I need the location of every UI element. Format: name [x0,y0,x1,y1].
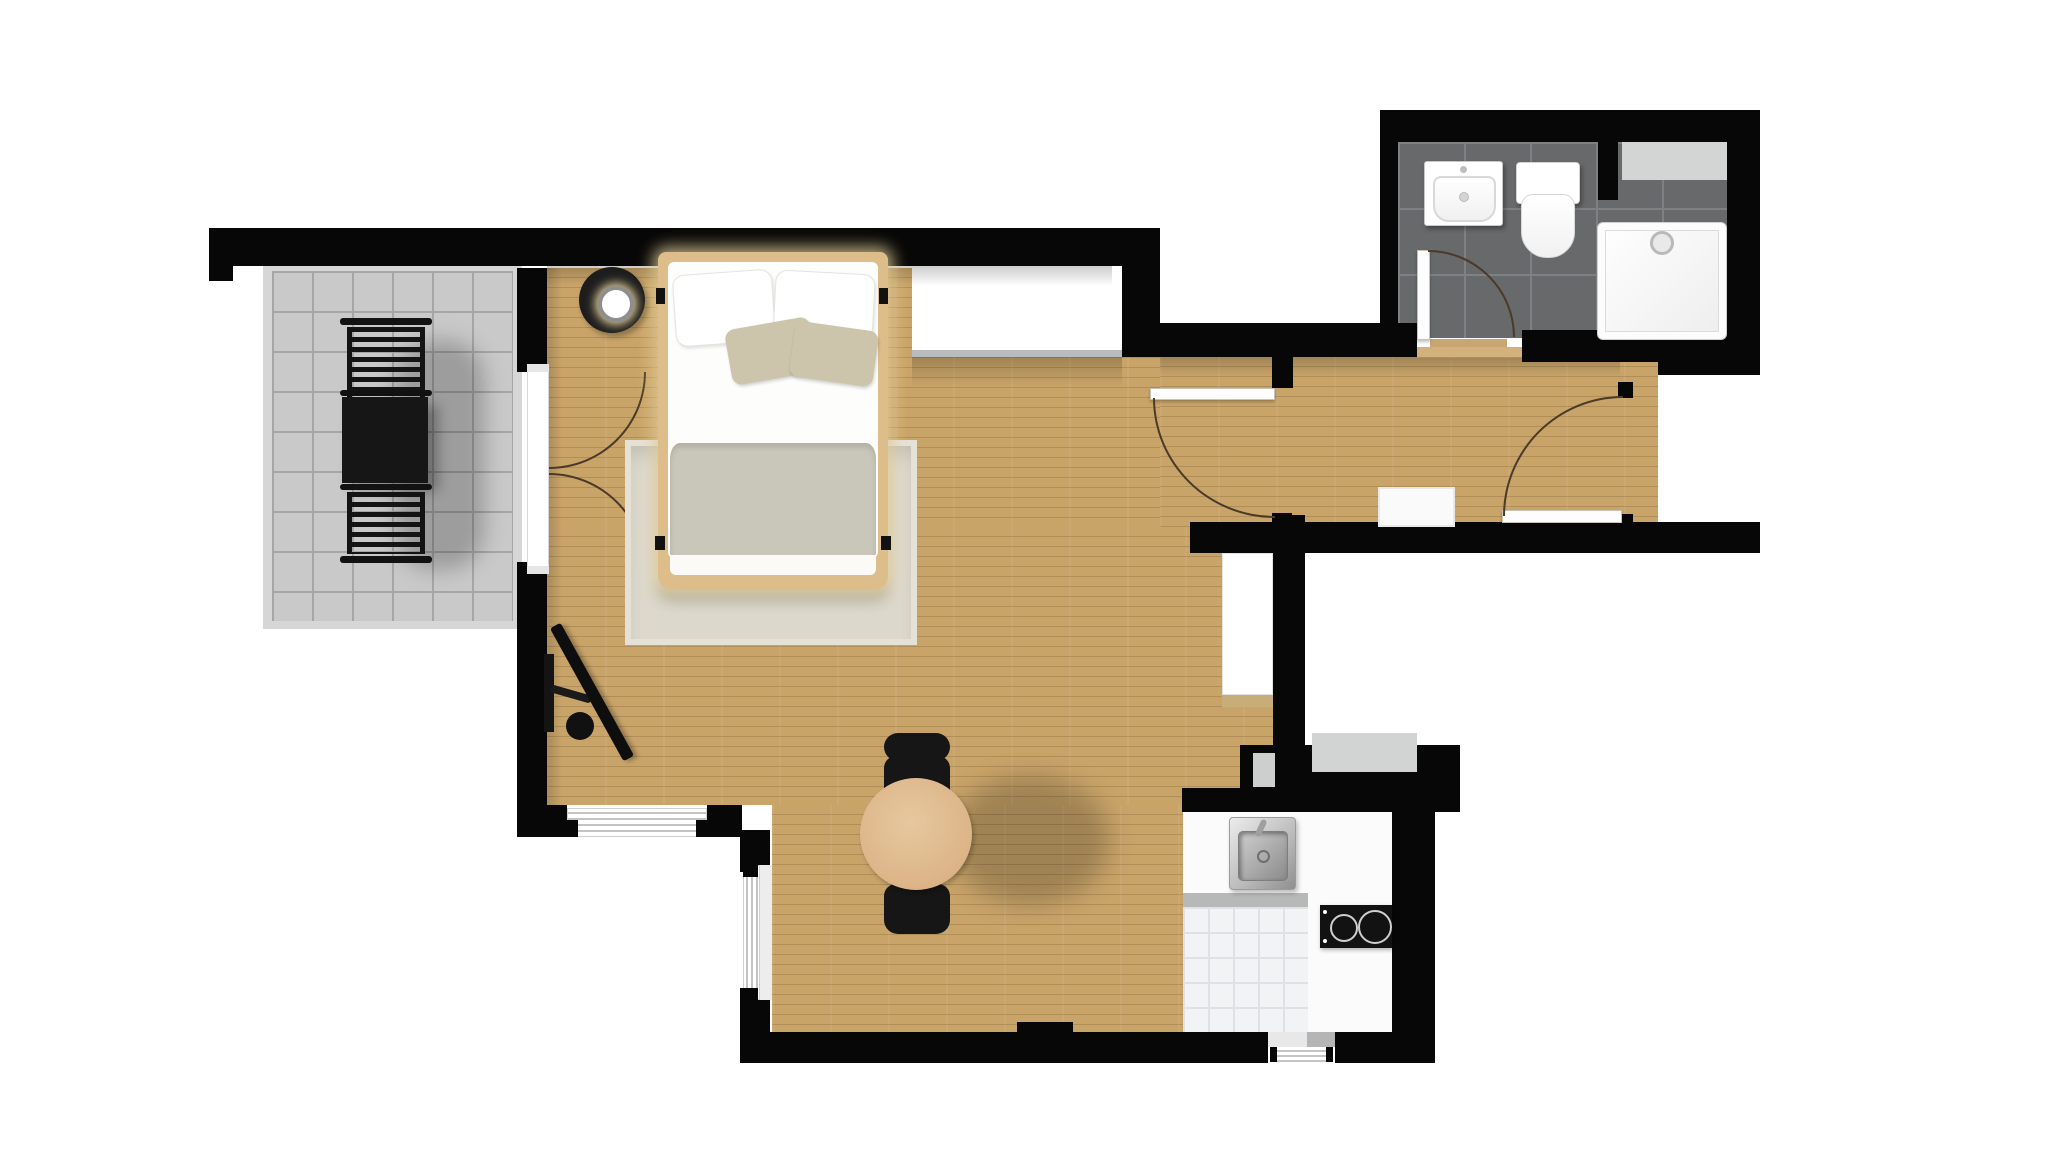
wall-hallway-top [1160,323,1417,357]
dining-chair-south [884,906,950,934]
exterior-notch-top [1160,200,1380,323]
window-post [743,865,758,877]
window-post [743,988,758,1000]
hob-burner-large [1358,910,1392,944]
balcony-table [342,397,428,483]
chair-armrest [340,484,432,490]
window-sill [760,865,772,1000]
kitchen-counter-edge [1183,893,1308,907]
living-window-south [567,808,707,837]
wall-bathroom-top [1380,110,1760,142]
wall-bathroom-right [1727,110,1760,362]
wall-bathroom-stub [1598,142,1618,200]
hall-door-stub [1272,355,1293,388]
living-window-west-lower [743,865,760,1000]
headboard-light [656,288,665,304]
tall-closet [1222,553,1273,695]
wardrobe-front-rail [912,350,1122,357]
appliance-niche [1312,733,1417,772]
chair-armrest [340,318,432,325]
floor-plan: Studio apartment floor plan, top-down vi… [0,0,2048,1173]
hob-knob [1323,910,1327,914]
washbasin-drain [1459,192,1469,202]
balcony-chair-top [347,327,425,397]
bed-sheet-fold [670,555,876,575]
bed-blanket [670,443,876,557]
closet-front-rail [1222,695,1273,707]
balcony-chair-bottom [347,492,425,554]
hob-burner-small [1330,914,1358,942]
window-post [1270,1047,1277,1062]
small-gray-niche [1253,753,1275,787]
doormat [1378,487,1455,527]
kitchen-sink [1229,817,1296,890]
kitchen-sink-drain [1257,850,1270,863]
tv-base [566,712,594,740]
bathroom-shelf [1622,142,1727,180]
washbasin-tap [1460,166,1467,173]
wall-bottom-left [770,1032,1268,1063]
wall-south-a [540,805,567,837]
shower-drain [1650,231,1674,255]
chair-armrest [340,556,432,563]
door-frame-post [527,566,549,574]
dining-table [860,778,972,890]
window-post [1326,1047,1333,1062]
kitchen-window [1270,1047,1333,1062]
washbasin [1424,161,1503,226]
chair-armrest [340,390,432,396]
window-post [696,820,707,837]
wall-kitchen-right [1392,812,1435,1063]
window-post [567,820,578,837]
headboard-light [879,288,888,304]
kitchen-tiled-floor [1183,907,1308,1032]
wall-bedroom-left-upper [517,268,547,372]
wall-south-b [707,805,742,837]
kitchen-window-sill [1268,1032,1335,1047]
wall-bathroom-left [1380,110,1398,345]
bed-clip [655,536,665,550]
wall-closet-right [1273,515,1305,780]
side-table-lamp [598,286,634,322]
door-frame-post [527,364,549,372]
wall-top-stub [209,262,233,281]
wall-kitchen-top [1182,788,1240,812]
wall-entry-lip [1658,362,1760,375]
two-burner-hob [1320,905,1392,948]
toilet-bowl [1521,194,1575,258]
wall-bedroom-left-lower [517,562,547,837]
bed-pillow-beige [789,320,880,387]
shower-tray [1597,222,1727,340]
exterior-notch-right [1305,553,1460,717]
wardrobe-shadow [912,357,1122,387]
hall-door-post [1272,513,1292,527]
wall-bedroom-right [1122,230,1160,357]
bed-clip [881,536,891,550]
kitchen-window-sill-gray [1307,1032,1335,1047]
french-door-opening [527,368,549,570]
floor-vent [1017,1022,1073,1032]
hob-knob [1323,939,1327,943]
dining-set-shadow [950,775,1110,905]
